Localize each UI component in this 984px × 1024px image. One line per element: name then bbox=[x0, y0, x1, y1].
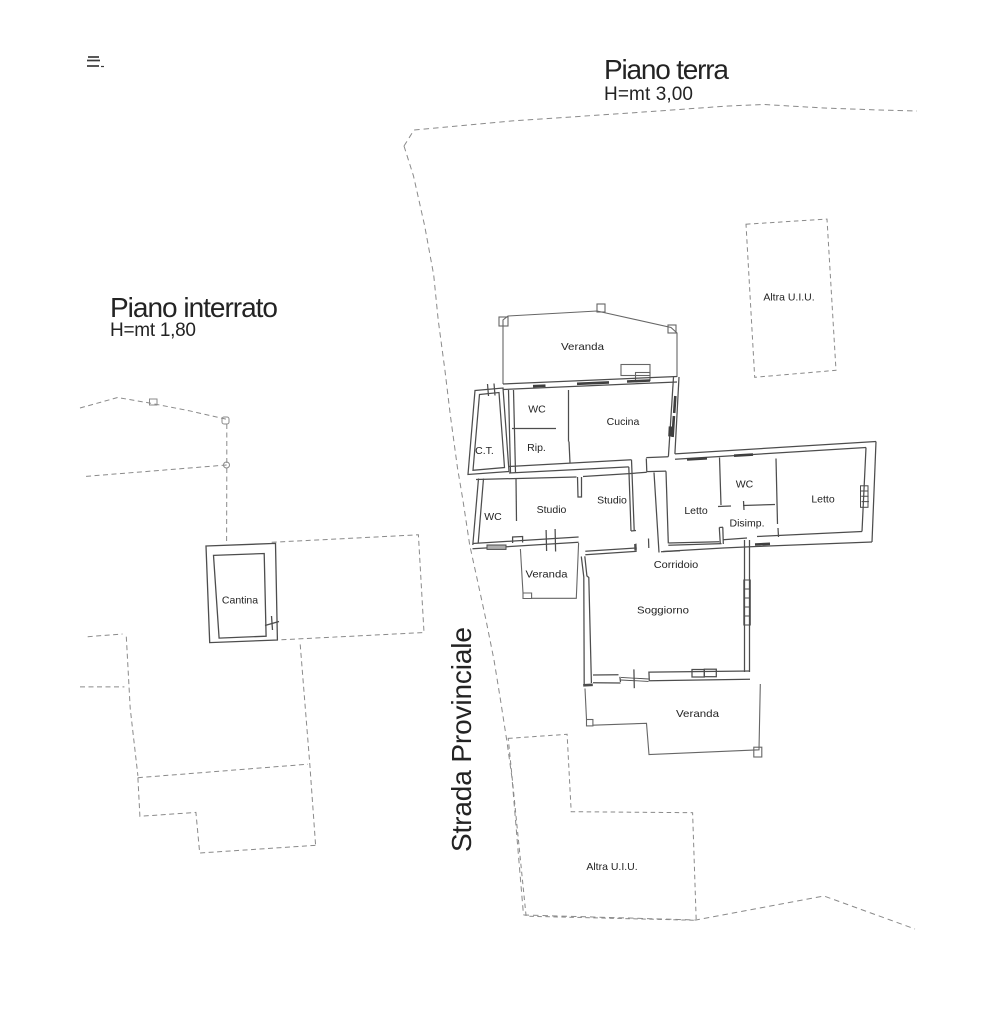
svg-text:Letto: Letto bbox=[684, 505, 708, 517]
svg-text:Studio: Studio bbox=[597, 495, 627, 507]
svg-text:Veranda: Veranda bbox=[526, 569, 568, 581]
svg-text:Studio: Studio bbox=[537, 504, 567, 516]
svg-text:WC: WC bbox=[736, 479, 754, 491]
svg-text:Cantina: Cantina bbox=[222, 595, 258, 607]
svg-text:Soggiorno: Soggiorno bbox=[637, 604, 689, 616]
svg-text:Cucina: Cucina bbox=[607, 416, 640, 428]
svg-text:Altra U.I.U.: Altra U.I.U. bbox=[586, 861, 637, 873]
svg-text:Altra U.I.U.: Altra U.I.U. bbox=[763, 292, 814, 304]
svg-text:Letto: Letto bbox=[811, 494, 835, 506]
svg-text:Rip.: Rip. bbox=[527, 442, 546, 454]
svg-text:Corridoio: Corridoio bbox=[654, 559, 699, 571]
svg-text:WC: WC bbox=[528, 404, 546, 416]
svg-text:Piano interrato: Piano interrato bbox=[110, 292, 278, 323]
svg-text:H=mt 3,00: H=mt 3,00 bbox=[604, 84, 693, 105]
svg-text:Veranda: Veranda bbox=[676, 708, 719, 720]
svg-text:Piano terra: Piano terra bbox=[604, 54, 729, 85]
svg-text:Disimp.: Disimp. bbox=[729, 518, 764, 530]
svg-text:C.T.: C.T. bbox=[475, 445, 494, 457]
svg-text:Strada Provinciale: Strada Provinciale bbox=[446, 627, 477, 852]
svg-text:WC: WC bbox=[484, 511, 502, 523]
svg-text:H=mt 1,80: H=mt 1,80 bbox=[110, 320, 196, 341]
svg-text:Veranda: Veranda bbox=[561, 341, 604, 353]
